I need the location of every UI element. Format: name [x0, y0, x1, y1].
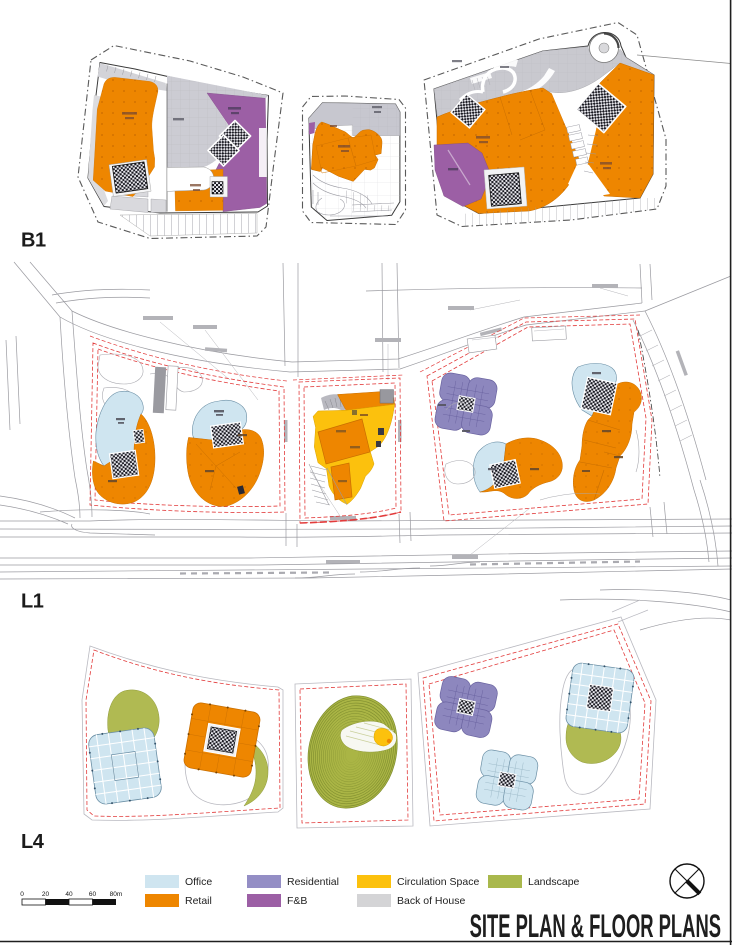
svg-text:60: 60: [89, 891, 97, 898]
svg-text:SITE PLAN & FLOOR PLANS: SITE PLAN & FLOOR PLANS: [470, 908, 721, 945]
svg-text:Circulation Space: Circulation Space: [397, 876, 479, 888]
svg-text:B1: B1: [21, 230, 46, 252]
svg-text:L4: L4: [21, 831, 45, 853]
svg-text:F&B: F&B: [287, 895, 307, 907]
svg-text:80m: 80m: [110, 891, 123, 898]
svg-text:20: 20: [42, 891, 50, 898]
svg-text:Office: Office: [185, 876, 212, 888]
svg-text:Back of House: Back of House: [397, 895, 465, 907]
svg-text:L1: L1: [21, 591, 44, 613]
svg-text:40: 40: [65, 891, 73, 898]
svg-text:0: 0: [20, 891, 24, 898]
svg-text:Landscape: Landscape: [528, 876, 580, 888]
svg-text:Retail: Retail: [185, 895, 212, 907]
svg-text:Residential: Residential: [287, 876, 339, 888]
